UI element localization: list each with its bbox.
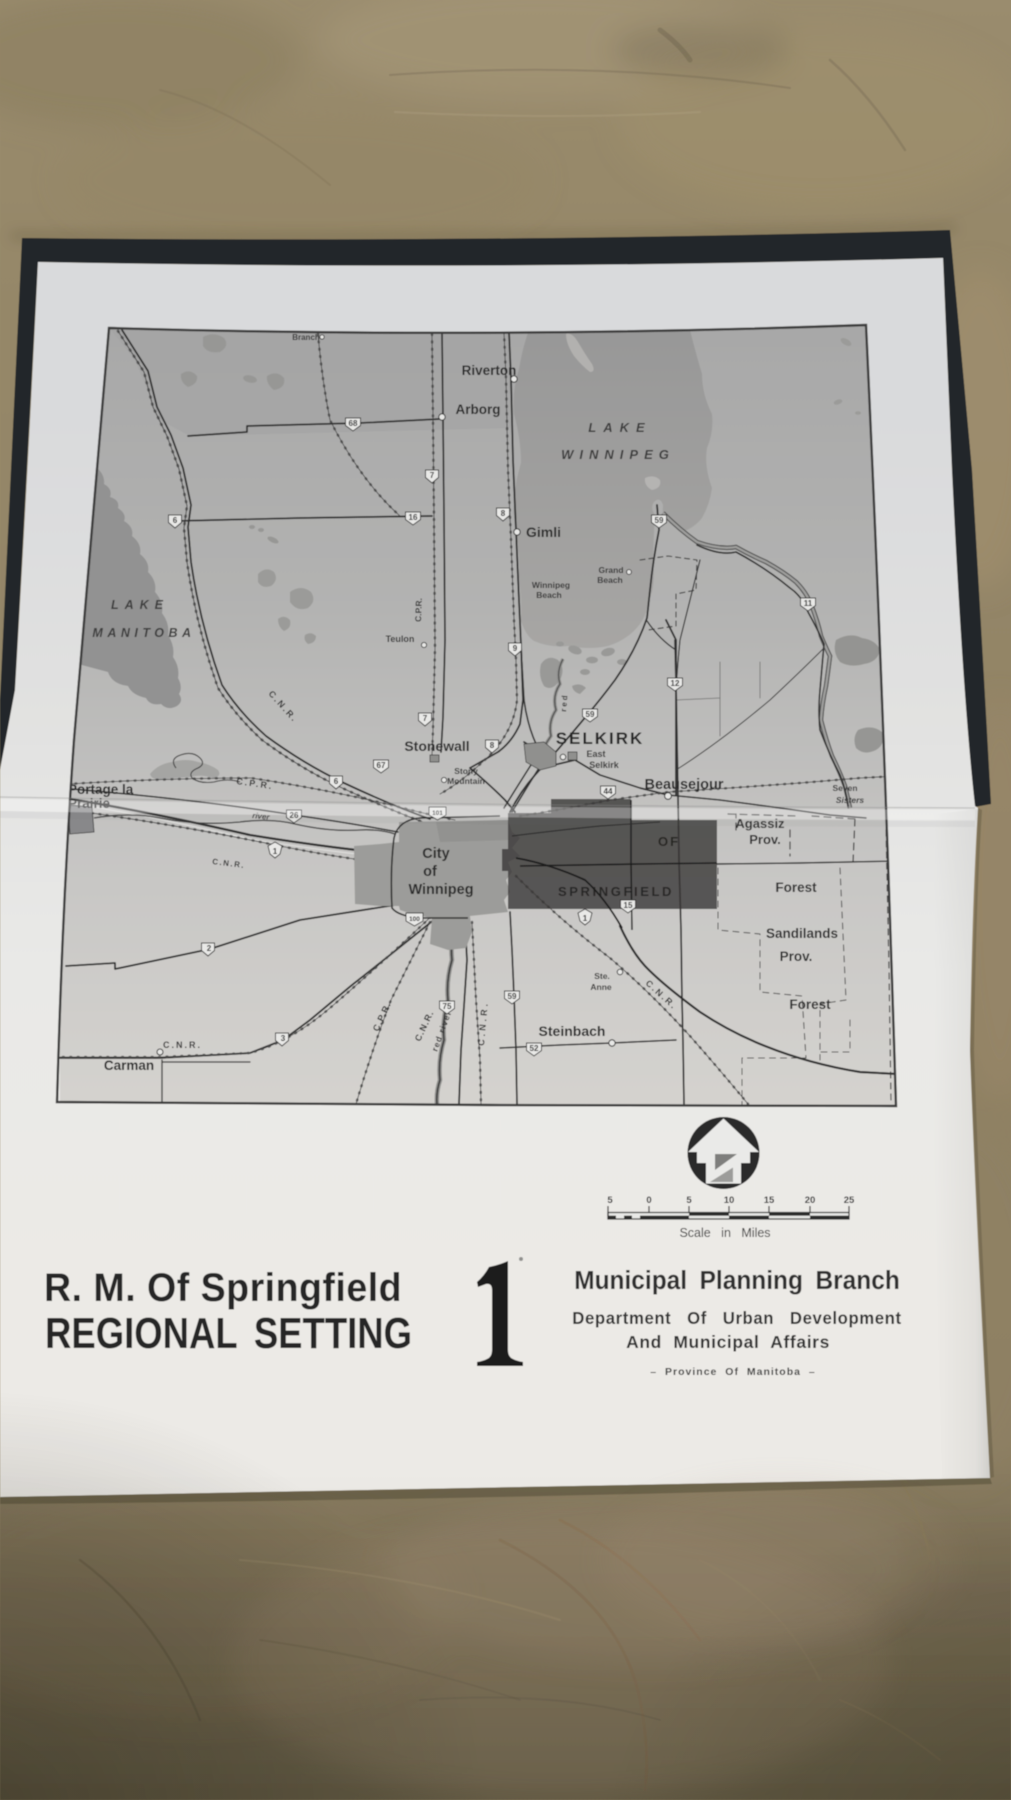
svg-text:7: 7 <box>430 471 435 480</box>
svg-text:Sisters: Sisters <box>836 795 865 805</box>
svg-text:44: 44 <box>604 787 613 796</box>
svg-text:7: 7 <box>423 714 428 723</box>
svg-text:10: 10 <box>724 1195 735 1206</box>
svg-text:Municipal Planning Branch: Municipal Planning Branch <box>574 1267 900 1296</box>
svg-text:15: 15 <box>624 901 633 910</box>
svg-text:Sandilands: Sandilands <box>766 926 838 941</box>
svg-text:Branch: Branch <box>292 333 320 342</box>
svg-text:Mountain: Mountain <box>447 776 485 786</box>
svg-text:11: 11 <box>804 599 813 608</box>
svg-text:C.P.R.: C.P.R. <box>413 598 424 622</box>
svg-text:2: 2 <box>207 944 212 953</box>
svg-text:Beach: Beach <box>536 590 562 600</box>
svg-text:3: 3 <box>281 1034 286 1043</box>
svg-text:Beach: Beach <box>597 575 623 585</box>
svg-text:1: 1 <box>273 847 278 856</box>
svg-text:8: 8 <box>490 741 495 750</box>
svg-text:Department Of Urban Developmen: Department Of Urban Development <box>572 1308 901 1328</box>
svg-text:Seven: Seven <box>832 783 857 793</box>
svg-text:East: East <box>586 749 605 759</box>
svg-text:12: 12 <box>671 679 680 688</box>
svg-text:Scale in Miles: Scale in Miles <box>679 1226 770 1240</box>
svg-text:City: City <box>422 846 449 862</box>
svg-text:Stonewall: Stonewall <box>404 738 469 754</box>
svg-text:100: 100 <box>409 916 420 923</box>
svg-text:59: 59 <box>586 710 595 719</box>
svg-text:LAKE: LAKE <box>111 598 169 612</box>
svg-text:5: 5 <box>686 1195 692 1206</box>
svg-text:25: 25 <box>844 1195 855 1206</box>
svg-text:WINNIPEG: WINNIPEG <box>561 447 675 462</box>
svg-text:Ste.: Ste. <box>594 971 610 981</box>
svg-text:– Province Of Manitoba –: – Province Of Manitoba – <box>650 1366 815 1378</box>
svg-text:59: 59 <box>655 516 664 525</box>
svg-text:Arborg: Arborg <box>456 402 501 417</box>
svg-text:67: 67 <box>377 761 386 770</box>
svg-text:68: 68 <box>349 419 358 428</box>
svg-text:Gimli: Gimli <box>526 524 561 540</box>
svg-text:of: of <box>423 864 437 880</box>
svg-text:9: 9 <box>513 644 518 653</box>
svg-text:red: red <box>559 693 570 712</box>
svg-text:59: 59 <box>508 992 517 1001</box>
svg-text:Forest: Forest <box>775 880 817 895</box>
svg-text:15: 15 <box>764 1195 775 1206</box>
svg-text:52: 52 <box>530 1044 539 1053</box>
svg-text:Forest: Forest <box>789 997 831 1012</box>
svg-text:OF: OF <box>658 834 680 849</box>
svg-text:Prov.: Prov. <box>780 949 813 964</box>
svg-text:Riverton: Riverton <box>462 363 517 378</box>
svg-text:Portage la: Portage la <box>68 782 134 797</box>
svg-text:16: 16 <box>409 513 418 522</box>
svg-text:R. M. Of Springfield: R. M. Of Springfield <box>44 1266 402 1310</box>
svg-text:Anne: Anne <box>590 982 612 992</box>
svg-text:And Municipal Affairs: And Municipal Affairs <box>626 1332 830 1352</box>
svg-text:C.N.R.: C.N.R. <box>163 1040 202 1050</box>
svg-text:Grand: Grand <box>598 565 623 575</box>
svg-text:Winnipeg: Winnipeg <box>532 580 570 590</box>
svg-text:LAKE: LAKE <box>588 420 651 435</box>
svg-text:5: 5 <box>607 1195 613 1206</box>
svg-text:SELKIRK: SELKIRK <box>556 729 645 748</box>
svg-text:20: 20 <box>805 1195 816 1206</box>
svg-text:Prov.: Prov. <box>749 832 781 847</box>
svg-text:MANITOBA: MANITOBA <box>92 626 195 640</box>
svg-text:Stony: Stony <box>454 766 478 776</box>
svg-text:1: 1 <box>583 914 588 923</box>
svg-text:Steinbach: Steinbach <box>539 1023 606 1039</box>
svg-text:8: 8 <box>501 509 506 518</box>
svg-text:SPRINGFIELD: SPRINGFIELD <box>558 884 674 899</box>
svg-text:Teulon: Teulon <box>386 634 415 644</box>
svg-text:Winnipeg: Winnipeg <box>408 882 473 898</box>
svg-text:Beausejour: Beausejour <box>645 777 724 793</box>
svg-text:75: 75 <box>443 1002 452 1011</box>
svg-text:Selkirk: Selkirk <box>589 760 620 770</box>
svg-text:Carman: Carman <box>104 1058 154 1073</box>
svg-text:6: 6 <box>173 516 178 525</box>
svg-text:6: 6 <box>334 777 339 786</box>
svg-text:0: 0 <box>646 1195 651 1206</box>
svg-text:REGIONAL SETTING: REGIONAL SETTING <box>45 1308 412 1358</box>
